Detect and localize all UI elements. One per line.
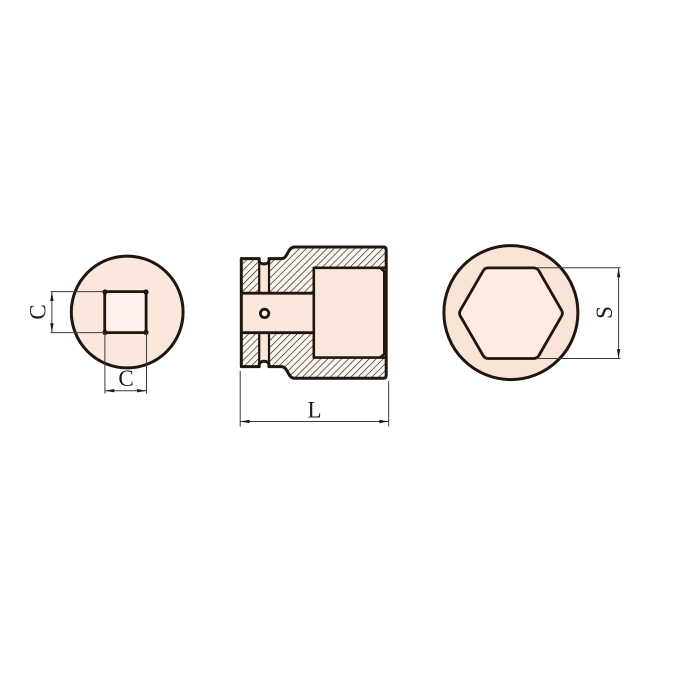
svg-text:L: L bbox=[307, 398, 321, 423]
svg-text:C: C bbox=[118, 366, 133, 391]
svg-text:S: S bbox=[592, 306, 617, 319]
svg-text:C: C bbox=[25, 304, 50, 319]
